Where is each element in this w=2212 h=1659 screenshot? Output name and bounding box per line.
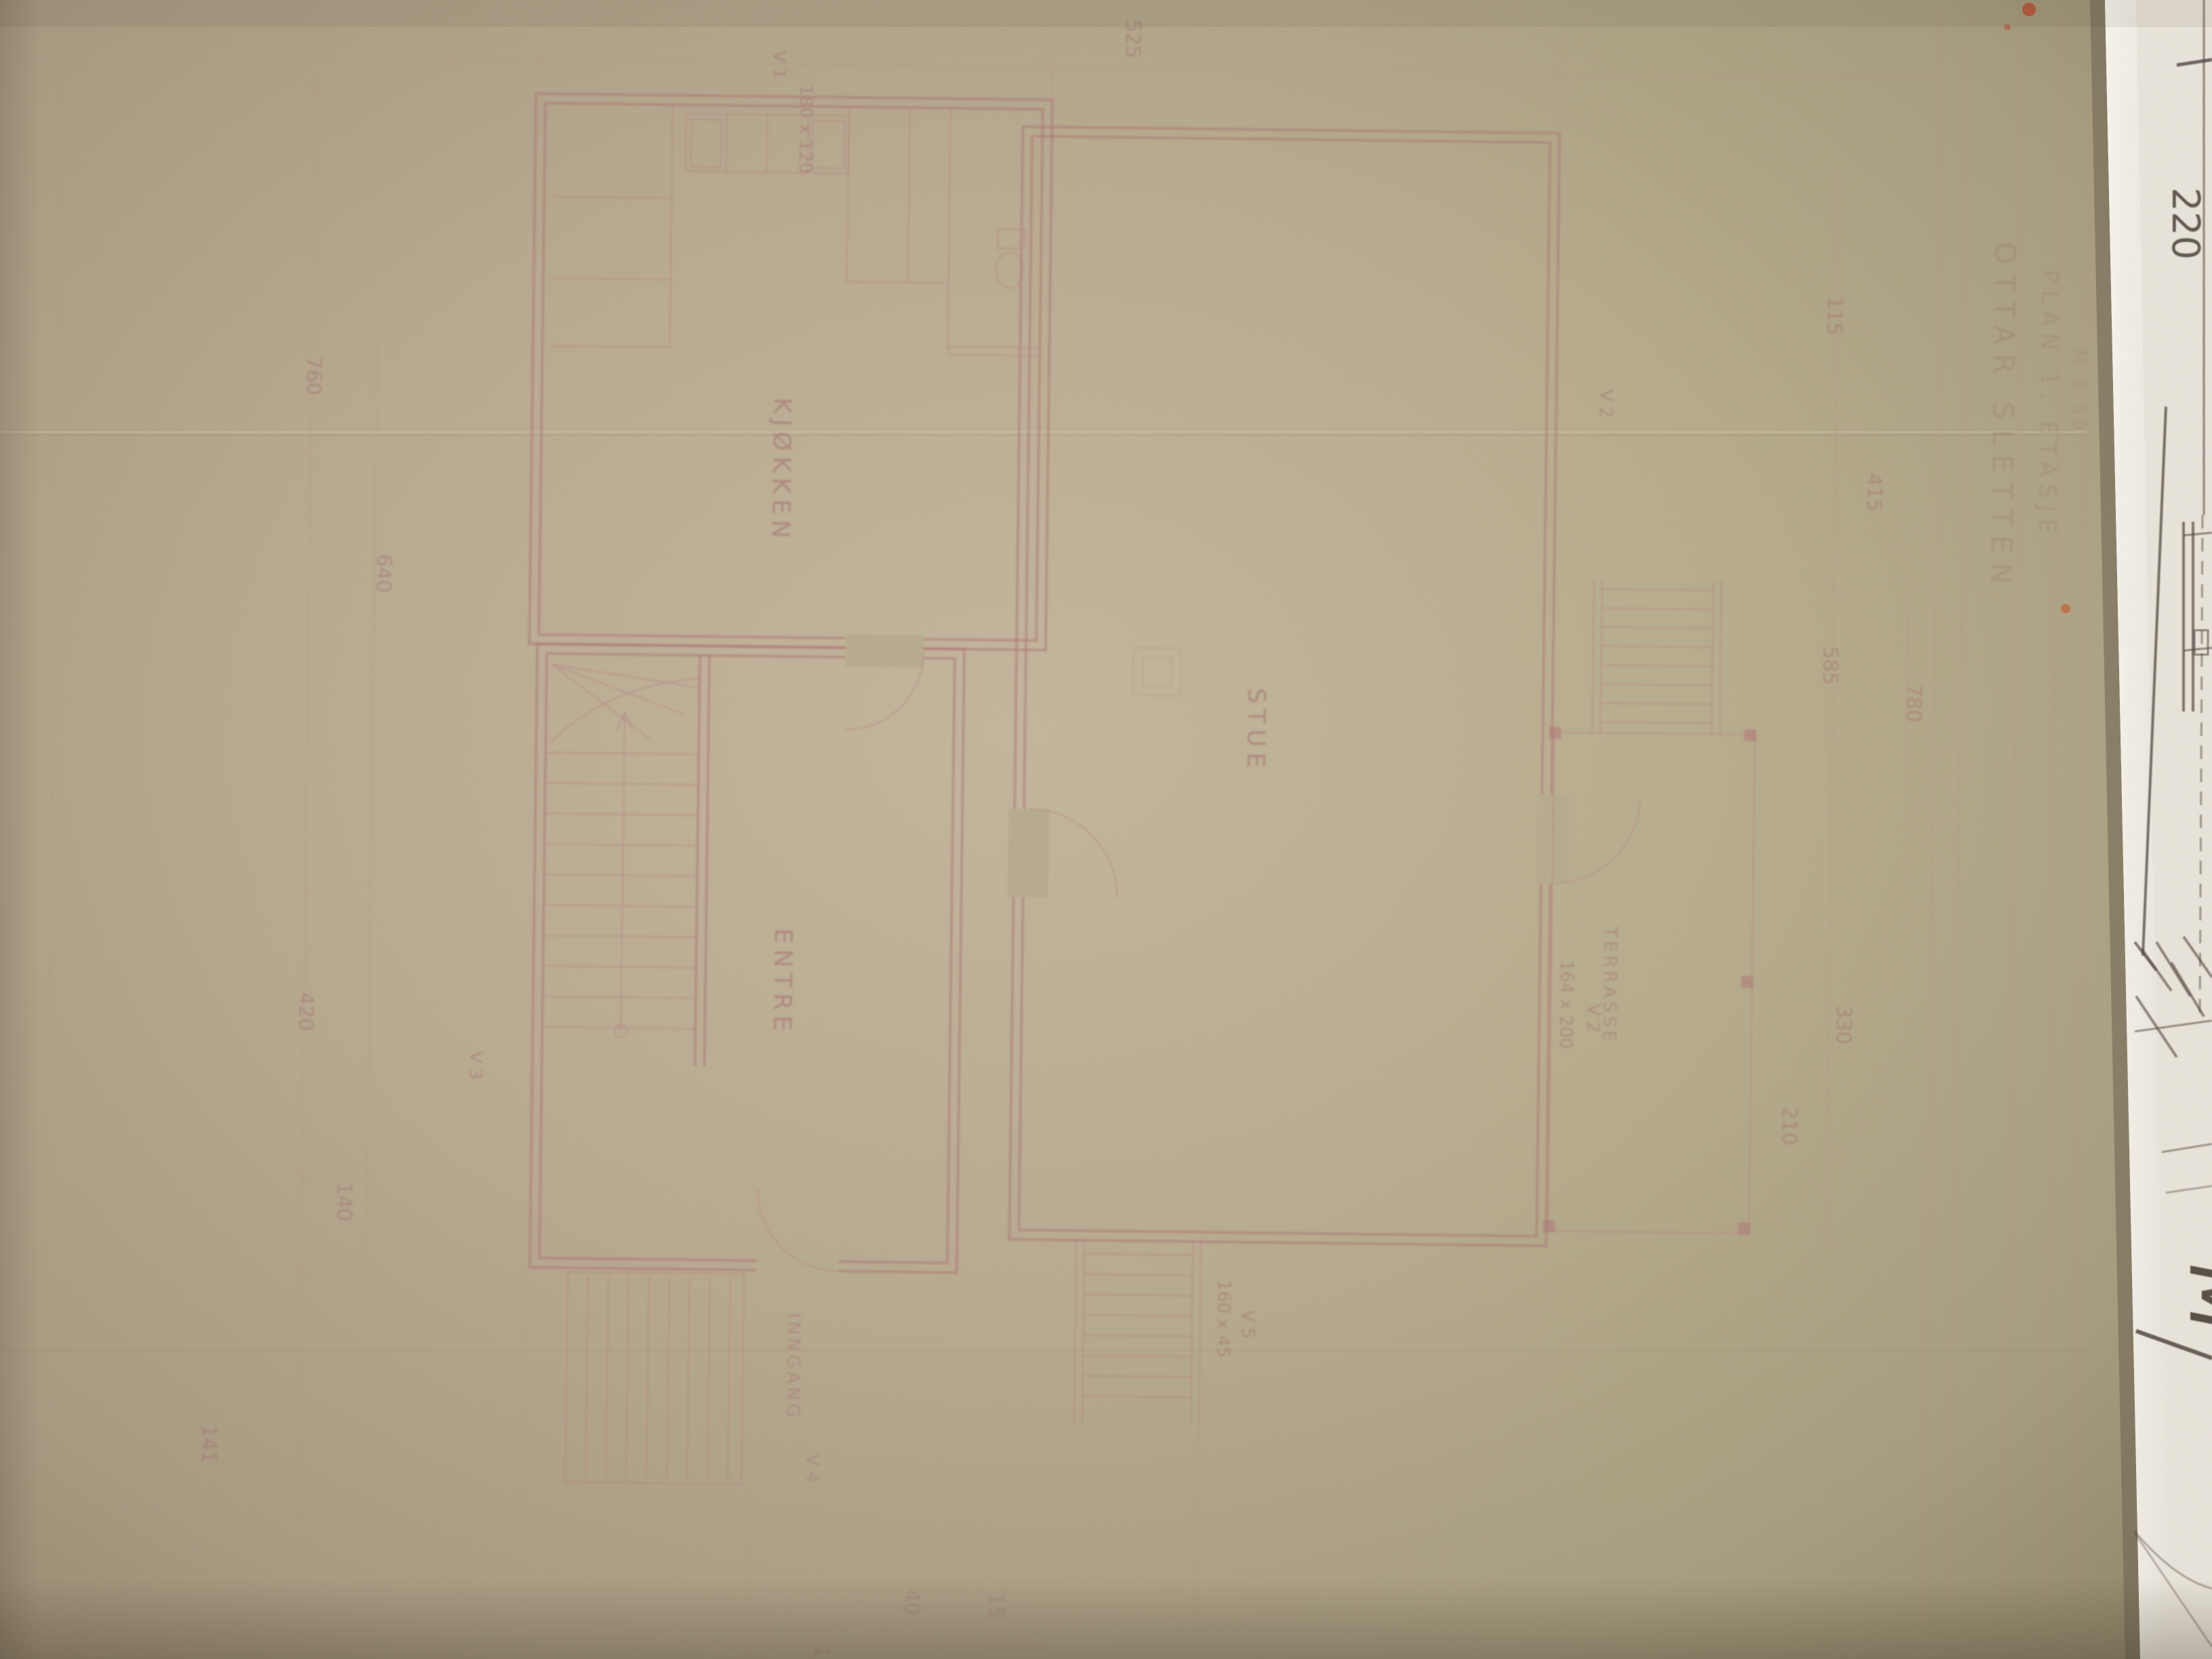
photo-lighting — [0, 0, 2212, 1659]
floor-plan-photo-canvas: 525 760 640 420 140 141 115 415 585 780 … — [0, 0, 2212, 1659]
photo-of-floor-plan: 525 760 640 420 140 141 115 415 585 780 … — [0, 0, 2212, 1659]
film-grain — [0, 0, 2212, 1659]
